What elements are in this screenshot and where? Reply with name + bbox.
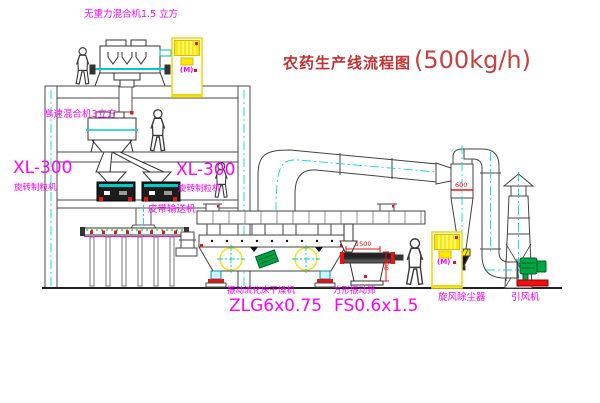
motor-symbol-bottom: (M) [437,259,450,266]
title-capacity: (500kg/h) [414,46,531,74]
dryer-feed-chute [176,232,197,256]
rotary-granulator-right [142,172,180,201]
label-high-speed-mixer: 高速混合机3立方 [44,110,117,120]
label-granulator-left-model: XL-300 [13,160,72,177]
process-flow-diagram: 农药生产线流程图 (500kg/h) 无重力混合机1.5 立方 高速混合机3立方… [0,0,600,403]
exhaust-riser-pipe [258,150,437,211]
label-gravity-mixer: 无重力混合机1.5 立方 [84,10,178,20]
worker-roof [76,48,89,84]
worker-ground [407,239,423,284]
label-cyclone: 旋风除尘器 [438,293,486,303]
diagram-title: 农药生产线流程图 (500kg/h) [283,46,531,74]
dim-sieve-height: 500 [383,258,390,270]
label-fan: 引风机 [511,293,540,303]
title-text: 农药生产线流程图 [283,52,411,73]
square-vibrating-sieve [340,224,403,285]
fluid-bed-dryer [197,204,425,287]
label-dryer-model: ZLG6x0.75 [229,298,322,315]
worker-second-floor [150,110,164,151]
dim-sieve-length: 1500 [355,241,372,248]
label-belt-conveyor: 皮带输送机 [148,205,196,215]
mixer-discharge-duct [119,87,132,112]
gravity-free-mixer [90,40,171,87]
motor-symbol-top: (M) [180,67,193,74]
label-sieve-name: 方形振动筛 [333,287,376,296]
belt-conveyor [80,227,189,286]
induced-draft-fan [517,258,548,286]
rotary-granulator-left [97,172,135,201]
label-granulator-left-name: 旋转制粒机 [14,184,57,193]
label-granulator-right-name: 旋转制粒机 [178,185,221,194]
label-granulator-right-model: XL-300 [176,162,235,179]
dim-cyclone: 600 [455,182,467,189]
dryer-feet [206,271,335,287]
label-dryer-name: 振动流化床干燥机 [227,287,295,296]
label-sieve-model: FS0.6x1.5 [334,298,418,315]
